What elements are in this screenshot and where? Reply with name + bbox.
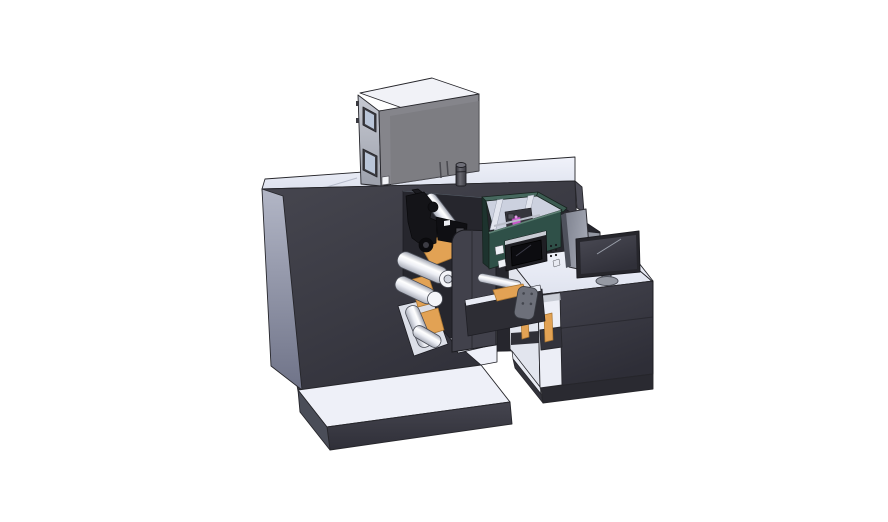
hinge-nub-1 bbox=[356, 101, 359, 106]
dryer-vent-slot-1 bbox=[440, 162, 441, 178]
monitor-base bbox=[596, 277, 618, 286]
cad-render bbox=[0, 0, 888, 522]
roller-2-endcap bbox=[428, 292, 443, 307]
carriage-block bbox=[508, 214, 514, 219]
cylinder-cap bbox=[456, 163, 466, 168]
cylinder-ring bbox=[456, 172, 466, 173]
unit-pad-1 bbox=[495, 245, 504, 255]
cylinder-body bbox=[456, 165, 466, 186]
cubby-orange-item bbox=[544, 313, 553, 342]
pink-knob bbox=[515, 216, 518, 219]
cad-viewport bbox=[0, 0, 888, 522]
dryer-box bbox=[356, 78, 479, 186]
dryer-vent-slot-2 bbox=[447, 161, 448, 175]
mechanism-pulley bbox=[428, 202, 438, 212]
hinge-nub-2 bbox=[356, 118, 359, 123]
mechanism-chip bbox=[444, 220, 450, 226]
roller-1-hub bbox=[444, 275, 452, 283]
mechanism-gear-hub bbox=[423, 242, 429, 248]
dryer-label-plate bbox=[382, 176, 389, 185]
exhaust-cylinder bbox=[456, 163, 466, 187]
